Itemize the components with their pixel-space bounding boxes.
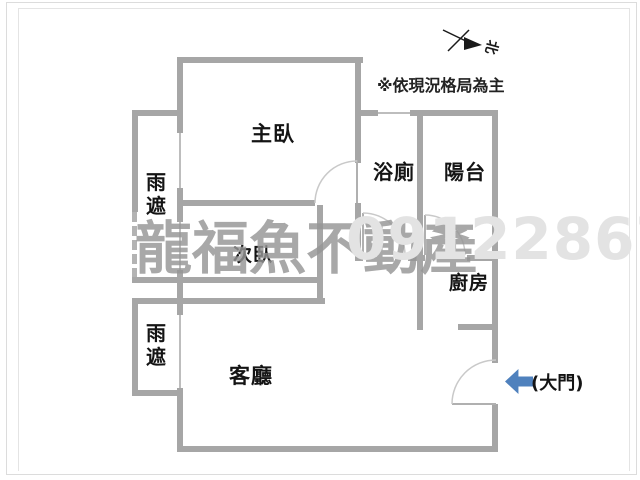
- room-label-master-bedroom: 主臥: [251, 118, 295, 148]
- entrance-door-arc: [452, 360, 496, 404]
- north-arrow-icon: 北: [443, 30, 501, 56]
- room-label-rain-canopy-lower: 雨遮: [145, 321, 167, 369]
- master-door-arc: [315, 161, 357, 203]
- room-label-bathroom: 浴廁: [373, 156, 415, 185]
- watermark-phone-number: 0912286720: [346, 205, 640, 273]
- room-label-balcony: 陽台: [444, 156, 486, 185]
- floorplan-canvas: 北 ※依現況格局為主 主臥 浴廁 陽台 雨遮 次臥 雨遮 客廳 廚房 (大門) …: [0, 0, 640, 480]
- room-label-living-room: 客廳: [229, 360, 273, 390]
- north-label: 北: [481, 38, 500, 56]
- entrance-label: (大門): [531, 369, 583, 395]
- plan-note: ※依現況格局為主: [377, 72, 505, 96]
